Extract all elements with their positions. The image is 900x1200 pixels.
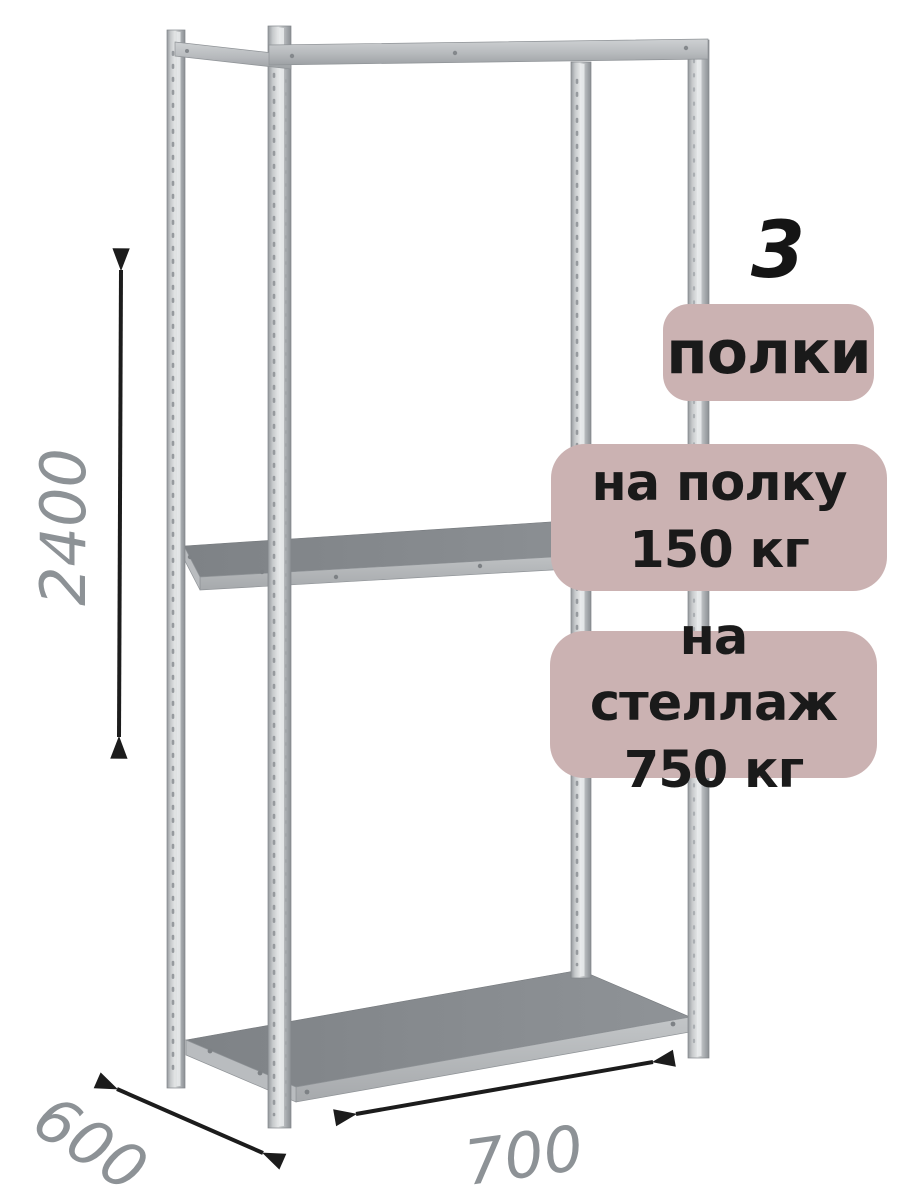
rack-illustration — [0, 0, 900, 1200]
shelf-count-number: 3 — [728, 212, 828, 290]
per-rack-load-value: 750 кг — [550, 738, 877, 804]
badge-per-shelf-load: на полку 150 кг — [551, 444, 887, 591]
per-shelf-load-value: 150 кг — [551, 518, 887, 584]
height-arrow — [119, 270, 121, 737]
per-shelf-load-title: на полку — [551, 451, 887, 517]
per-rack-load-title: на стеллаж — [550, 605, 877, 738]
post-front-left — [268, 26, 291, 1128]
badge-per-rack-load: на стеллаж 750 кг — [550, 631, 877, 778]
badge-shelf-count-label: полки — [663, 314, 874, 392]
post-back-left — [167, 30, 185, 1088]
rack-top-frame — [175, 39, 708, 69]
badge-shelf-count: полки — [663, 304, 874, 401]
bottom-shelf — [186, 970, 690, 1102]
product-image: 2400 600 700 3 полки на полку 150 кг на … — [0, 0, 900, 1200]
height-dimension-label: 2400 — [32, 441, 96, 613]
